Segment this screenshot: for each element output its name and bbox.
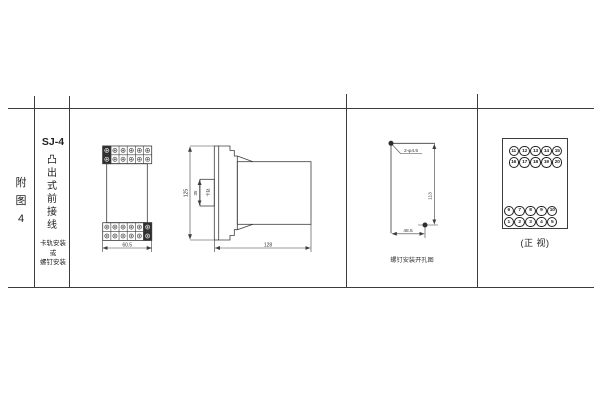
side-depth-dim-label: 128 [264, 242, 273, 248]
drill-hole-bottom [423, 223, 428, 228]
terminal-number: 12 [519, 146, 529, 156]
terminal-number: 15 [552, 146, 562, 156]
drawing-sheet: 附 图 4 SJ-4 凸 出 式 前 接 线 卡轨安装 或 螺钉安装 [0, 0, 600, 400]
bottom-rule [8, 287, 594, 288]
terminal-number: 1 [504, 217, 514, 227]
drill-hole-diagram: 2-φ4.5 113 48.5 螺钉安装开孔图 [368, 135, 478, 270]
mounting-note-line: 卡轨安装 [36, 239, 70, 249]
terminal-number: 13 [530, 146, 540, 156]
terminal-row: 6 7 8 9 10 [504, 206, 558, 216]
front-width-dim-label: 60.5 [122, 242, 132, 248]
drill-hole-top [389, 141, 394, 146]
terminal-number: 17 [519, 157, 529, 167]
terminal-number: 20 [552, 157, 562, 167]
terminal-number: 7 [514, 206, 524, 216]
figure-label: 附 图 4 [12, 178, 30, 225]
terminal-group-bottom: 6 7 8 9 10 1 2 3 4 5 [504, 206, 558, 228]
rail-slot-label: 卡轨 [205, 188, 212, 197]
terminal-number: 10 [547, 206, 557, 216]
figure-label-char: 4 [18, 214, 24, 225]
terminal-row: 16 17 18 19 20 [509, 157, 563, 167]
mounting-note-line: 或 [36, 249, 70, 259]
terminal-number: 14 [541, 146, 551, 156]
terminal-number: 8 [525, 206, 535, 216]
terminal-number: 4 [536, 217, 546, 227]
figure-label-char: 附 [16, 178, 27, 189]
top-rule [8, 108, 594, 109]
type-char: 前 [47, 195, 57, 205]
terminal-number: 6 [504, 206, 514, 216]
terminal-number: 18 [530, 157, 540, 167]
drill-diagram-caption: 螺钉安装开孔图 [390, 256, 433, 264]
drill-dimensions [392, 144, 435, 234]
side-view-drawing [200, 146, 311, 240]
figure-label-char: 图 [16, 196, 27, 207]
mounting-note-line: 螺钉安装 [36, 258, 70, 268]
terminal-number: 16 [509, 157, 519, 167]
terminal-row: 11 12 13 14 15 [509, 146, 563, 156]
terminal-view-caption: (正 视) [502, 236, 568, 249]
terminal-number: 9 [536, 206, 546, 216]
drill-horizontal-dim-label: 48.5 [403, 228, 413, 234]
terminal-number: 5 [547, 217, 557, 227]
type-char: 出 [47, 169, 57, 179]
drill-vertical-dim-label: 113 [428, 192, 434, 200]
type-char: 式 [47, 182, 57, 192]
outline-views-drawing: 60.5 125 35 卡轨 128 [95, 140, 320, 255]
type-label-vertical: 凸 出 式 前 接 线 [42, 156, 62, 231]
type-char: 接 [47, 208, 57, 218]
divider-figure-col [34, 96, 35, 288]
divider-drill-panel [346, 94, 347, 288]
drill-outline [391, 143, 438, 238]
front-view-drawing [103, 146, 152, 240]
terminal-number: 2 [514, 217, 524, 227]
terminal-group-top: 11 12 13 14 15 16 17 18 19 20 [509, 146, 563, 168]
model-label: SJ-4 [36, 136, 70, 148]
side-height-dim-label: 125 [184, 189, 190, 198]
type-char: 凸 [47, 156, 57, 166]
rail-slot-dim-label: 35 [193, 190, 198, 196]
terminal-number: 11 [509, 146, 519, 156]
mounting-note: 卡轨安装 或 螺钉安装 [36, 239, 70, 268]
type-char: 线 [47, 221, 57, 231]
terminal-row: 1 2 3 4 5 [504, 217, 558, 227]
drill-hole-size-label: 2-φ4.5 [404, 148, 418, 154]
terminal-number: 19 [541, 157, 551, 167]
terminal-number: 3 [525, 217, 535, 227]
